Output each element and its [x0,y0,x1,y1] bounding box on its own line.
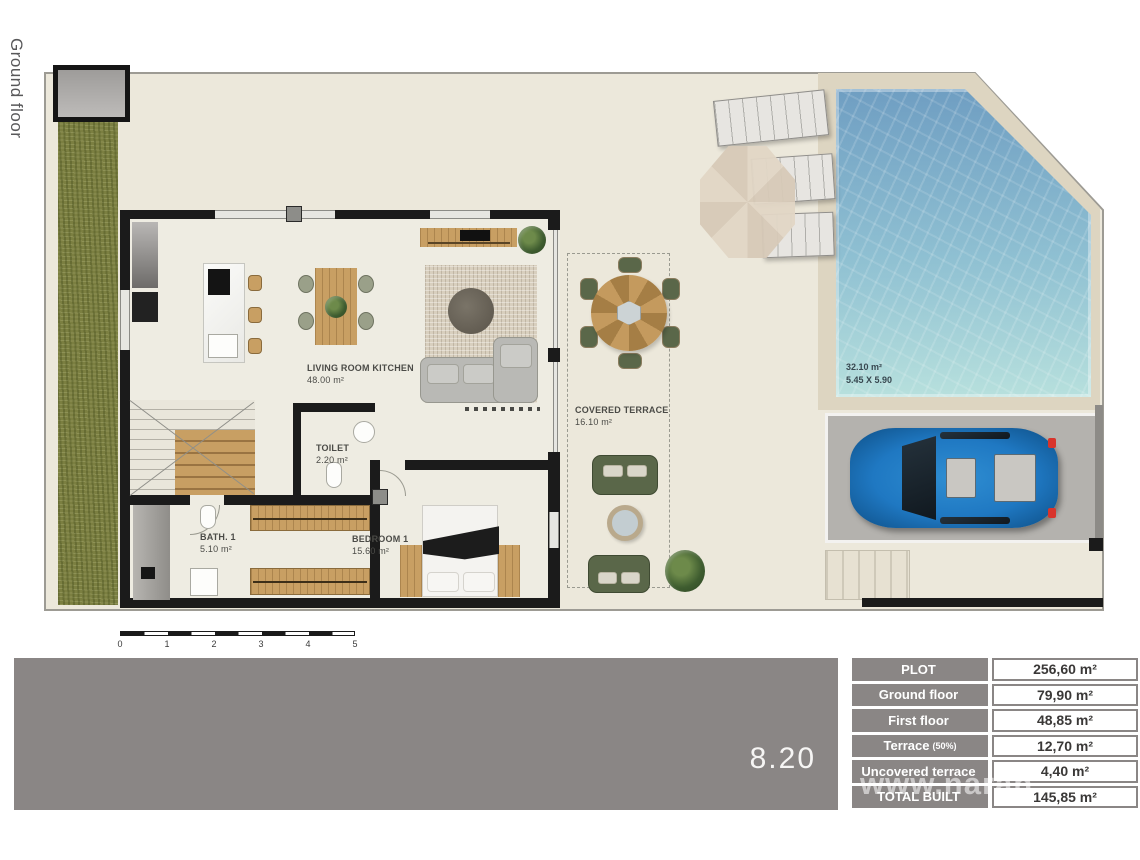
tv [460,230,490,241]
toilet-wall [293,403,301,500]
floorplan-page: { "sidebar": { "floor_label": "Ground fl… [0,0,1140,860]
scale-tick: 4 [302,639,314,649]
window-top [430,210,490,219]
room-area: 15.60 m² [352,546,408,558]
glass-door [553,230,558,348]
sofa-cushion [500,344,532,368]
terrace-sofa [588,555,650,593]
kitchen-sink [208,334,238,358]
scale-tick: 5 [349,639,361,649]
row-label-text: Ground floor [879,687,958,702]
table-row-value: 79,90 m² [992,684,1138,707]
room-area: 5.10 m² [200,544,236,556]
cooktop [208,269,230,295]
row-label-text: Terrace [883,738,929,753]
pillar [372,489,388,505]
scale-bar: 0 1 2 3 4 5 [120,631,357,653]
table-row-label: Ground floor [852,684,988,707]
table-row-label: Terrace(50%) [852,735,988,758]
footer-bar: 8.20 [14,658,838,810]
toilet-sink [353,421,375,443]
garden-grass-strip [58,122,118,605]
wardrobe [250,505,370,531]
window-left [120,290,130,350]
room-name: TOILET [316,443,349,455]
console-shelf [428,242,510,244]
pool-dimensions: 5.45 X 5.90 [846,374,892,387]
fridge [132,222,158,288]
row-label-text: PLOT [901,662,936,677]
floor-title: Ground floor [6,38,26,139]
interior-stairs [130,400,255,495]
boundary-wall [1095,405,1103,545]
oven [132,292,158,322]
scale-rule [120,631,355,636]
terrace-round-table [591,275,667,351]
glass-door [553,362,558,452]
room-area: 48.00 m² [307,375,414,387]
terrace-chair [662,326,680,348]
car-taillight [1048,508,1056,518]
wall-post [1089,538,1103,551]
room-label-toilet: TOILET 2.20 m² [316,443,349,466]
table-row-value: 256,60 m² [992,658,1138,681]
terrace-coffee-table [607,505,643,541]
wall-bottom [120,598,560,608]
sofa-cushion [627,465,647,477]
pool-label: 32.10 m² 5.45 X 5.90 [846,361,892,387]
window-top [215,210,335,219]
tv-console [420,228,517,247]
sofa-cushion [427,364,459,384]
wardrobe-rail [253,518,367,520]
plan-number: 8.20 [750,742,816,776]
watermark: www.naran [860,766,1033,802]
boundary-wall-bottom [862,598,1103,607]
row-label-text: First floor [888,713,949,728]
toilet-wall [293,403,375,412]
doormat-dots [465,407,540,411]
car-side-glass [940,432,1010,439]
room-name: BEDROOM 1 [352,534,408,546]
parking-area [825,413,1100,543]
scale-tick: 2 [208,639,220,649]
table-row-label: First floor [852,709,988,732]
wall-left [120,210,130,608]
table-plant [325,296,347,318]
kitchen-island [203,263,245,363]
dining-chair [298,312,314,330]
car-side-glass [940,517,1010,524]
bar-stool [248,275,262,291]
scale-tick: 1 [161,639,173,649]
pillow [427,572,459,592]
table-row-label: PLOT [852,658,988,681]
dining-chair [298,275,314,293]
room-label-bedroom: BEDROOM 1 15.60 m² [352,534,408,557]
bath-wall [120,495,380,505]
bedroom-wall [405,460,560,470]
terrace-sofa [592,455,658,495]
room-label-terrace: COVERED TERRACE 16.10 m² [575,405,669,428]
sofa-cushion [603,465,623,477]
room-area: 2.20 m² [316,455,349,467]
bath-toilet [200,505,216,529]
table-row-value: 48,85 m² [992,709,1138,732]
bed [422,505,498,597]
wall-post [548,348,560,362]
sofa-chaise [493,337,538,403]
door-opening [190,495,224,505]
wall-top [120,210,560,219]
scale-tick: 3 [255,639,267,649]
dining-chair [358,312,374,330]
room-name: COVERED TERRACE [575,405,669,417]
sofa-cushion [598,572,617,584]
wardrobe [250,568,370,595]
table-centerpiece [617,301,641,325]
bar-stool [248,338,262,354]
shower-head [141,567,155,579]
wall-post [548,210,560,230]
table-row-value: 12,70 m² [992,735,1138,758]
wardrobe-rail [253,581,367,583]
dining-chair [358,275,374,293]
room-name: BATH. 1 [200,532,236,544]
exterior-stairs [825,550,910,600]
car [850,428,1058,528]
bar-stool [248,307,262,323]
corner-plant [518,226,546,254]
bedroom-window [549,512,559,548]
row-label-note: (50%) [933,741,957,751]
scale-tick: 0 [114,639,126,649]
terrace-chair [662,278,680,300]
pool-area: 32.10 m² [846,361,892,374]
shower [133,505,170,600]
room-area: 16.10 m² [575,417,669,429]
room-label-bath: BATH. 1 5.10 m² [200,532,236,555]
terrace-chair [618,257,642,273]
car-rear-window [994,454,1036,502]
car-windshield [902,436,936,520]
car-sunroof [946,458,976,498]
parasol [700,146,795,258]
terrace-plant [665,550,705,592]
sofa-cushion [621,572,640,584]
pillow [463,572,495,592]
sofa-cushion [463,364,495,384]
floorplan-canvas: 32.10 m² 5.45 X 5.90 [40,60,1108,615]
room-label-living: LIVING ROOM KITCHEN 48.00 m² [307,363,414,386]
round-carpet [448,288,494,334]
bath-sink [190,568,218,596]
pillar [286,206,302,222]
utility-box [53,65,130,122]
car-taillight [1048,438,1056,448]
terrace-chair [618,353,642,369]
room-name: LIVING ROOM KITCHEN [307,363,414,375]
